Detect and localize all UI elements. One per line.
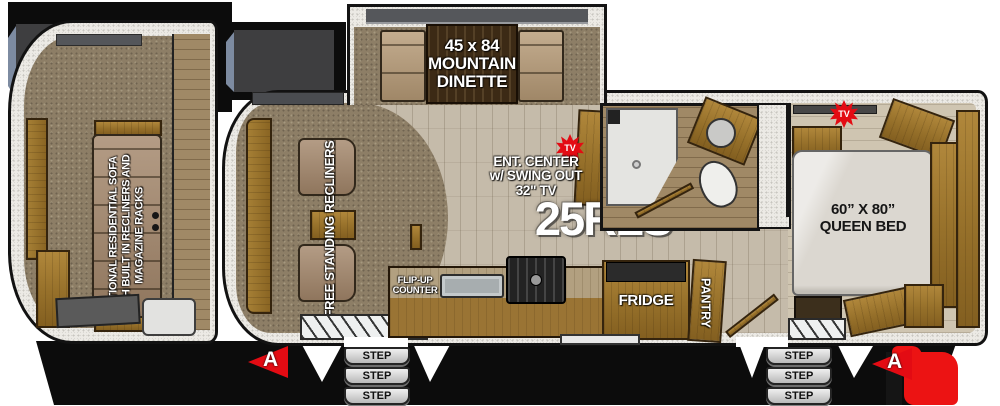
inset-front-cabinet [26, 118, 48, 260]
bedroom-wall [786, 103, 790, 217]
flip-up-counter-label: FLIP-UP COUNTER [388, 276, 442, 296]
sofa-cupholder [152, 224, 159, 231]
marker-a-left-text: A [263, 348, 278, 372]
step: STEP [344, 387, 410, 405]
shower-drain [632, 160, 641, 169]
front-wall-cabinet [246, 118, 272, 314]
tv-badge-text: TV [564, 143, 576, 153]
step: STEP [344, 367, 410, 385]
inset-entry-landing [142, 298, 196, 336]
sofa-cupholder [152, 212, 159, 219]
living-window-top [252, 92, 344, 105]
main-slide-topper [234, 30, 334, 92]
floor-register [410, 224, 422, 250]
step: STEP [344, 347, 410, 365]
tv-badge-text: TV [838, 109, 850, 119]
floorplan-25rls: OPTIONAL RESIDENTIAL SOFA WITH BUILT IN … [0, 0, 1000, 406]
ent-center-label-line: ENT. CENTER [468, 155, 604, 169]
marker-a-right-text: A [887, 350, 902, 374]
fridge-top [606, 262, 686, 282]
shower-head [608, 110, 620, 124]
queen-bed-label-line: QUEEN BED [796, 219, 930, 236]
dinette-window [366, 9, 588, 24]
queen-bed-label: 60” X 80” QUEEN BED [796, 202, 930, 235]
queen-bed-label-line: 60” X 80” [796, 202, 930, 219]
step: STEP [766, 387, 832, 405]
step: STEP [766, 367, 832, 385]
flip-up-counter-line: COUNTER [388, 286, 442, 296]
inset-step-well [55, 294, 140, 328]
stove-knob [530, 274, 542, 286]
rear-closet [956, 110, 980, 328]
step: STEP [766, 347, 832, 365]
kitchen-sink [440, 274, 504, 298]
kitchen-window [560, 334, 640, 345]
recliners-label: FREE STANDING RECLINERS [323, 129, 337, 329]
fridge-label: FRIDGE [602, 293, 690, 309]
dinette-label-line: 45 x 84 [392, 37, 552, 55]
main-topper-edge [226, 32, 234, 92]
bedroom-cabinet [904, 284, 944, 328]
dinette-label-line: DINETTE [392, 73, 552, 91]
dinette-label-line: MOUNTAIN [392, 55, 552, 73]
entry-door-gap-right [736, 337, 788, 347]
vanity-sink [706, 118, 736, 148]
bedroom-window [788, 318, 846, 340]
dinette-label: 45 x 84 MOUNTAIN DINETTE [392, 37, 552, 92]
pantry-label: PANTRY [698, 266, 711, 340]
inset-window-top [56, 34, 142, 46]
inset-wood-floor [172, 34, 210, 330]
entry-door-gap-left [344, 337, 408, 347]
ent-center-label-line: w/ SWING OUT [468, 169, 604, 183]
